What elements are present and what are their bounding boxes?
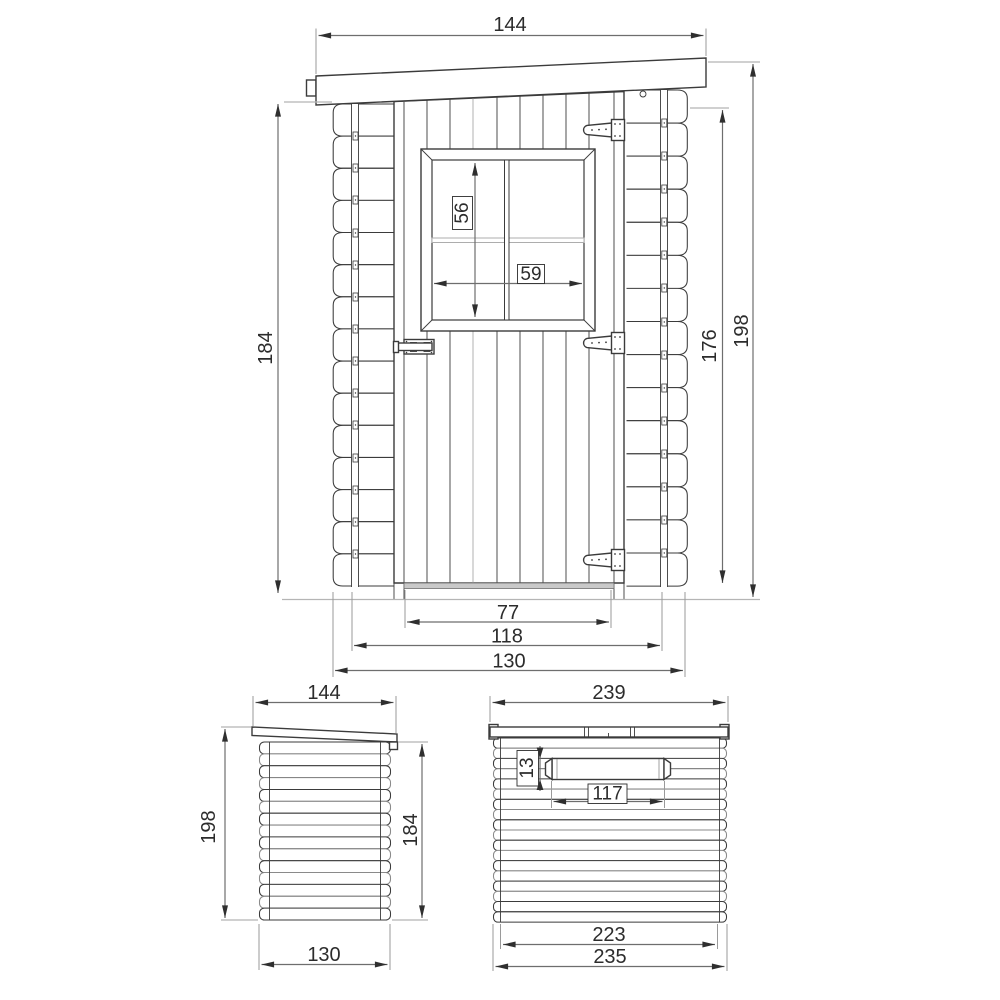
side-roof bbox=[252, 727, 397, 742]
dim-wall-height-right: 176 bbox=[690, 108, 729, 583]
side-view: 144 198 184 130 bbox=[198, 682, 428, 970]
dim-wall-height-side: 184 bbox=[392, 742, 428, 920]
batten-thickness-label: 13 bbox=[517, 757, 538, 778]
batten-length-label: 117 bbox=[592, 783, 622, 804]
roof-batten bbox=[546, 759, 671, 780]
dim-door-width: 77 bbox=[405, 590, 611, 628]
technical-drawing-page: 56 59 bbox=[0, 0, 1000, 1000]
roof-board-end bbox=[307, 80, 317, 96]
side-wall-height-label: 184 bbox=[400, 813, 422, 846]
top-view: 239 13 117 223 235 bbox=[489, 682, 729, 971]
side-overall-height-label: 198 bbox=[198, 810, 220, 843]
wall-height-left-label: 184 bbox=[255, 331, 277, 364]
dim-wall-height-left: 184 bbox=[255, 102, 332, 593]
top-roof-width-label: 239 bbox=[592, 682, 625, 704]
front-right-corner-trim bbox=[661, 90, 668, 587]
side-roof-fascia-end bbox=[390, 742, 398, 750]
frame-width-label: 118 bbox=[491, 626, 523, 648]
window-width-label: 59 bbox=[520, 264, 541, 285]
wall-height-right-label: 176 bbox=[699, 329, 721, 362]
dim-roof-depth: 144 bbox=[253, 682, 396, 733]
window: 56 59 bbox=[421, 149, 595, 331]
front-left-wall bbox=[333, 104, 394, 587]
roof-depth-label: 144 bbox=[307, 682, 340, 704]
base-depth-label: 130 bbox=[307, 944, 340, 966]
roof-edge-strip bbox=[489, 725, 729, 740]
front-left-corner-trim bbox=[352, 104, 359, 587]
dim-base-depth: 130 bbox=[259, 924, 390, 970]
door-threshold bbox=[404, 583, 614, 589]
shed-dimension-drawing: 56 59 bbox=[0, 0, 1000, 1000]
front-right-wall bbox=[627, 90, 688, 587]
side-wall-logs bbox=[260, 742, 391, 920]
base-width-label: 130 bbox=[492, 651, 525, 673]
outer-width-label: 235 bbox=[593, 946, 626, 968]
door-width-label: 77 bbox=[497, 602, 519, 624]
roof-width-label: 144 bbox=[493, 14, 526, 36]
overall-height-label: 198 bbox=[731, 314, 753, 347]
front-view: 56 59 bbox=[255, 14, 760, 677]
inner-width-label: 223 bbox=[592, 924, 625, 946]
window-height-label: 56 bbox=[452, 202, 473, 223]
dim-overall-height-side: 198 bbox=[198, 727, 258, 920]
dim-roof-width-top: 239 bbox=[490, 682, 728, 722]
dim-batten-thickness: 13 bbox=[517, 746, 543, 791]
window-mullion-vertical bbox=[505, 160, 510, 320]
